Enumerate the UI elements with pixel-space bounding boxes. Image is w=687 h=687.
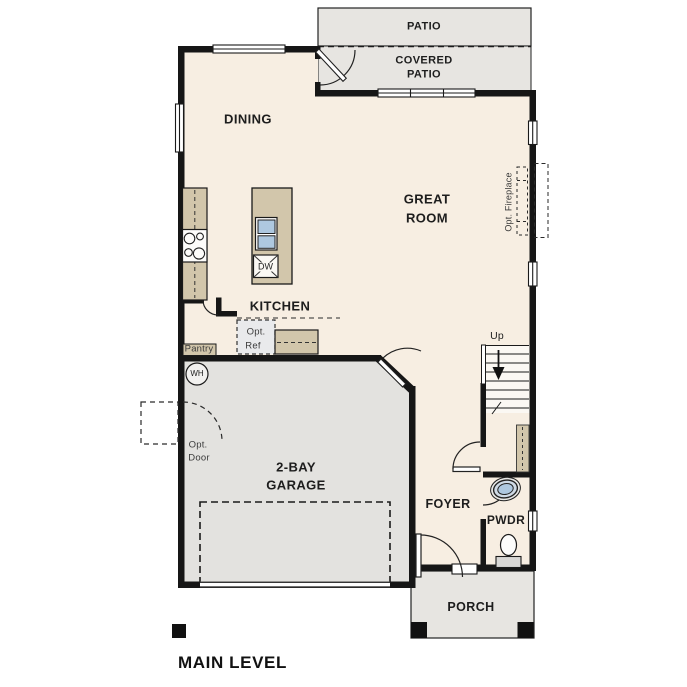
porch-post: [411, 622, 427, 638]
porch-label: PORCH: [447, 601, 494, 614]
burner: [193, 248, 204, 259]
opt-ref-label-1: Opt.: [247, 327, 266, 337]
burner: [185, 249, 193, 257]
front-door-leaf: [416, 534, 421, 577]
foyer-label: FOYER: [425, 498, 470, 511]
pantry-label: Pantry: [185, 344, 214, 354]
fireplace-outer-dashed: [535, 164, 549, 238]
toilet-tank: [496, 557, 521, 568]
great-room-label-2: ROOM: [406, 212, 448, 225]
stairs-up-label: Up: [490, 331, 504, 342]
porch-post: [518, 622, 534, 638]
patio-label: PATIO: [407, 22, 441, 33]
exterior-post: [172, 624, 186, 638]
counter-right: [275, 330, 318, 354]
wall-coveredpatio-stub-bottom: [315, 82, 321, 96]
opt-door-stoop-dashed: [141, 402, 178, 444]
hall-closet-door-leaf: [453, 467, 480, 472]
powder-label: PWDR: [487, 514, 525, 526]
front-door-threshold: [452, 564, 477, 574]
floor-plan-drawing: [0, 0, 687, 687]
wall-garage-right: [409, 386, 416, 584]
kitchen-label: KITCHEN: [250, 300, 311, 313]
coat-closet: [517, 425, 530, 472]
wall-ref-nook: [216, 311, 237, 317]
floor-plan-page: PATIO COVERED PATIO DINING GREAT ROOM KI…: [0, 0, 687, 687]
wall-powder-left: [481, 519, 487, 565]
burner: [197, 233, 204, 240]
sink-bowl: [258, 220, 275, 234]
opt-ref-label-2: Ref: [245, 341, 260, 351]
sink-bowl: [258, 236, 275, 249]
stairwell-floor: [486, 345, 530, 413]
opt-door-label-1: Opt.: [189, 440, 208, 450]
covered-patio-label-2: PATIO: [407, 70, 441, 81]
wall-right: [530, 90, 537, 571]
stair-rail: [482, 345, 486, 384]
dining-label: DINING: [224, 113, 272, 126]
great-room-label-1: GREAT: [404, 193, 451, 206]
garage-label-1: 2-BAY: [276, 461, 316, 474]
toilet-bowl: [501, 535, 517, 556]
plan-title: MAIN LEVEL: [178, 653, 287, 673]
burner: [184, 233, 195, 244]
water-heater-label: WH: [190, 370, 203, 378]
opt-fireplace-label: Opt. Fireplace: [505, 172, 514, 231]
garage-label-2: GARAGE: [266, 479, 325, 492]
dishwasher-label: DW: [257, 262, 274, 271]
opt-door-label-2: Door: [188, 453, 209, 463]
covered-patio-label-1: COVERED: [395, 56, 452, 67]
wall-stairs-left: [481, 383, 487, 447]
